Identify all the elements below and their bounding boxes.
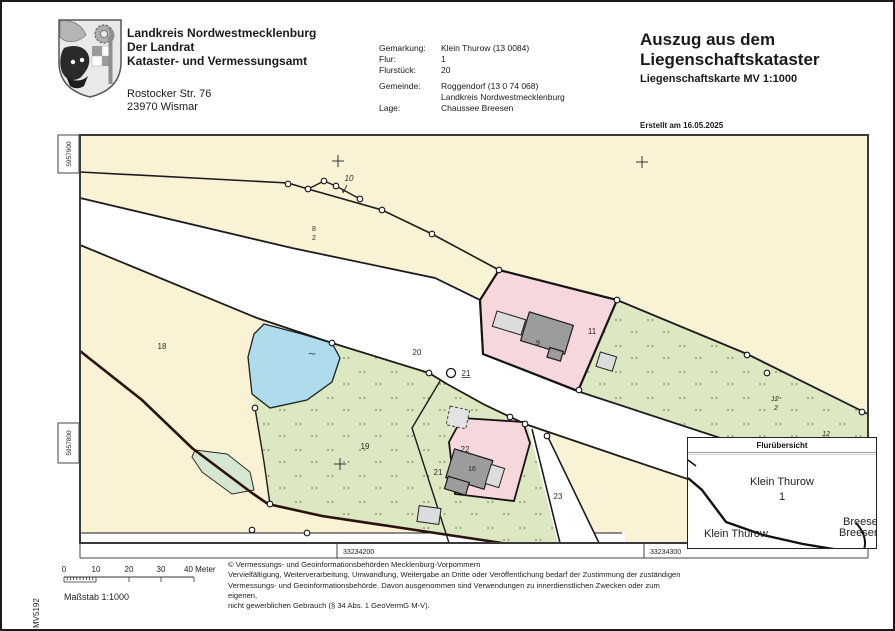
office-line1: Landkreis Nordwestmecklenburg xyxy=(127,26,316,40)
scale-tick-30: 30 xyxy=(157,565,166,574)
label-parcel-19: 19 xyxy=(361,442,370,451)
label-parcel-8-denominator: 2 xyxy=(312,235,316,242)
document-title-block: Auszug aus dem Liegenschaftskataster Lie… xyxy=(640,30,820,85)
flur-overview-inset[interactable]: Flurübersicht Klein Thurow 1 Klein Thuro… xyxy=(687,437,877,549)
label-parcel-21: 21 xyxy=(434,468,443,477)
lage-value: Chaussee Breesen xyxy=(441,103,565,114)
northing-bottom: 5957800 xyxy=(66,430,73,456)
label-parcel-22: 22 xyxy=(461,445,470,454)
crest-crozier-staff xyxy=(109,42,113,84)
building-shed-south[interactable] xyxy=(417,506,441,525)
easting-left: 33234200 xyxy=(343,549,374,556)
scale-tick-0: 0 xyxy=(62,565,67,574)
doc-title-line2: Liegenschaftskataster xyxy=(640,50,820,70)
gemeinde-value1: Roggendorf (13 0 74 068) xyxy=(441,76,565,92)
office-city: 23970 Wismar xyxy=(127,101,211,114)
label-parcel-23: 23 xyxy=(554,492,563,501)
doc-title-line1: Auszug aus dem xyxy=(640,30,820,50)
northing-labels: 5957900 5957800 xyxy=(58,135,79,463)
gemarkung-label: Gemarkung: xyxy=(379,43,441,54)
scale-tick-20: 20 xyxy=(125,565,134,574)
copyright-line-3: Vermessungs- und Geoinformationsbehörde.… xyxy=(228,581,688,602)
inset-area-name: Klein Thurow xyxy=(688,476,876,488)
flurstueck-value: 20 xyxy=(441,65,565,76)
label-parcel-12: 12 xyxy=(771,396,779,403)
crest-checker xyxy=(92,46,102,56)
gemeinde-label: Gemeinde: xyxy=(379,76,441,92)
label-parcel-10: 10 xyxy=(345,174,354,183)
label-parcel-20: 20 xyxy=(413,348,422,357)
label-parcel-8: 8 xyxy=(312,226,316,233)
building-outline-dashed[interactable] xyxy=(446,406,470,429)
copyright-line-2: Vervielfältigung, Weiterverarbeitung, Um… xyxy=(228,570,688,580)
lage-label: Lage: xyxy=(379,103,441,114)
doc-subtitle: Liegenschaftskarte MV 1:1000 xyxy=(640,73,820,85)
easting-right: 33234300 xyxy=(650,549,681,556)
office-address: Rostocker Str. 76 23970 Wismar xyxy=(127,88,211,114)
map-sheet-number: MV5192 xyxy=(32,568,41,628)
label-building-9: 9 xyxy=(536,340,540,347)
flur-label: Flur: xyxy=(379,54,441,65)
inset-neighbor-left: Klein Thurow xyxy=(704,528,768,540)
copyright-notice: © Vermessungs- und Geoinformationsbehörd… xyxy=(228,560,688,611)
scale-caption: Maßstab 1:1000 xyxy=(64,592,129,602)
label-parcel-11: 11 xyxy=(588,327,597,336)
cadastral-extract-page: Landkreis Nordwestmecklenburg Der Landra… xyxy=(0,0,895,631)
flurstueck-label: Flurstück: xyxy=(379,65,441,76)
office-street: Rostocker Str. 76 xyxy=(127,88,211,101)
water-symbol: ~ xyxy=(308,346,316,361)
scale-tick-10: 10 xyxy=(92,565,101,574)
office-line3: Kataster- und Vermessungsamt xyxy=(127,54,316,68)
label-point-21: 21 xyxy=(462,369,471,378)
gemarkung-value: Klein Thurow (13 0084) xyxy=(441,43,565,54)
scale-minor-ticks xyxy=(64,577,194,582)
label-parcel-18: 18 xyxy=(158,342,167,351)
northing-top: 5957900 xyxy=(66,141,73,167)
parcel-info-block: Gemarkung: Klein Thurow (13 0084) Flur: … xyxy=(379,43,565,114)
scale-end-label: 40 Meter xyxy=(184,565,216,574)
copyright-line-1: © Vermessungs- und Geoinformationsbehörd… xyxy=(228,560,688,570)
label-building-16: 16 xyxy=(468,466,476,473)
label-parcel-12-denominator: 2 xyxy=(773,405,778,412)
copyright-line-4: nicht gewerblichen Gebrauch (§ 34 Abs. 1… xyxy=(228,601,688,611)
flur-value: 1 xyxy=(441,54,565,65)
gemeinde-value2: Landkreis Nordwestmecklenburg xyxy=(441,92,565,103)
inset-neighbor-right-2: Breesen xyxy=(839,527,877,539)
inset-area-number: 1 xyxy=(688,491,876,503)
office-line2: Der Landrat xyxy=(127,40,316,54)
scale-bar: 0 10 20 30 40 Meter xyxy=(60,562,220,588)
issuing-office-block: Landkreis Nordwestmecklenburg Der Landra… xyxy=(127,26,316,68)
coat-of-arms xyxy=(56,18,124,100)
